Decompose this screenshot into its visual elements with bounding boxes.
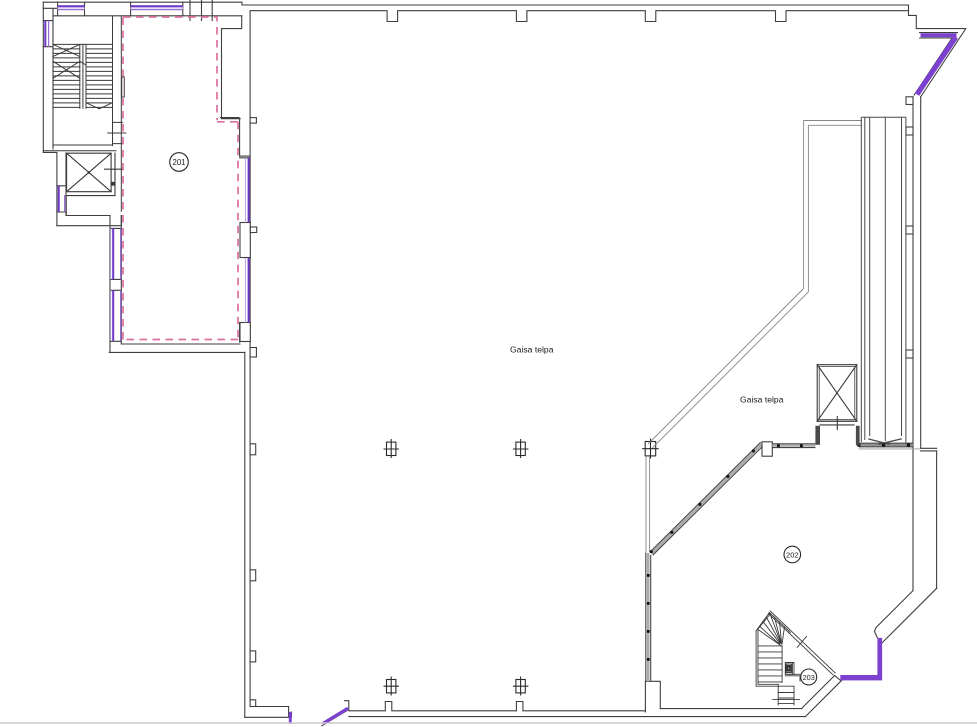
svg-text:202: 202 xyxy=(786,550,799,559)
svg-text:201: 201 xyxy=(172,158,185,167)
svg-text:Gaisa telpa: Gaisa telpa xyxy=(740,395,784,405)
svg-text:203: 203 xyxy=(803,673,815,682)
svg-text:Gaisa telpa: Gaisa telpa xyxy=(510,345,554,355)
